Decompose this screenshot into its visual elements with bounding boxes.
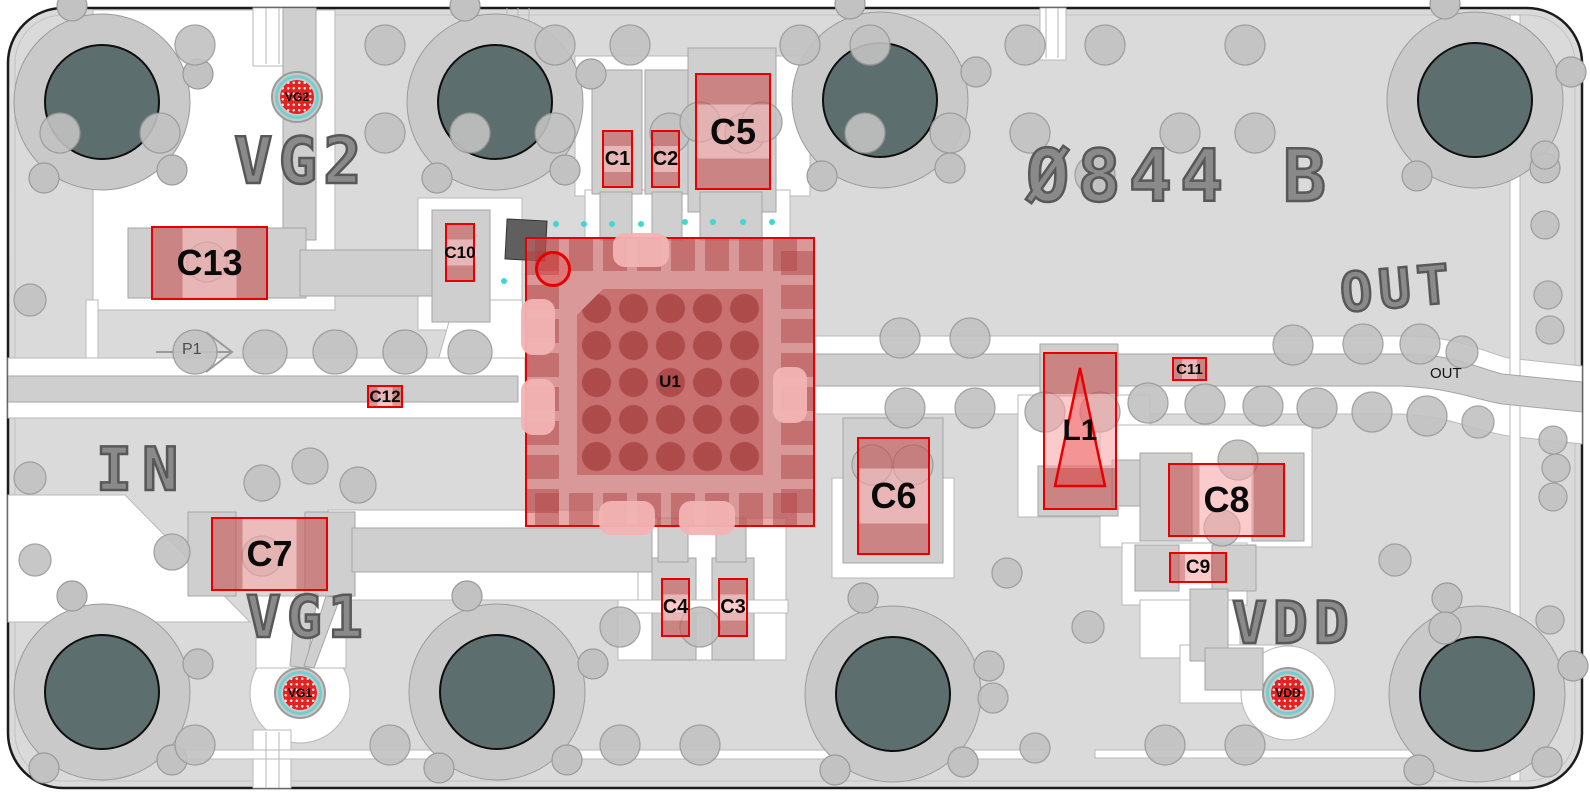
via xyxy=(1243,386,1283,426)
component-designator: C2 xyxy=(653,132,678,186)
silkscreen-board-id: Ø844 B xyxy=(1026,140,1334,212)
testpoint-label: VG2 xyxy=(273,73,321,121)
component-designator: C1 xyxy=(604,132,631,186)
via xyxy=(1273,325,1313,365)
via xyxy=(845,113,885,153)
component-C2[interactable]: C2 xyxy=(651,130,680,188)
component-C8[interactable]: C8 xyxy=(1168,463,1285,537)
silkscreen-in: IN xyxy=(96,440,188,500)
component-C10[interactable]: C10 xyxy=(445,223,475,282)
via xyxy=(1225,725,1265,765)
via xyxy=(930,113,970,153)
silkscreen-vdd: VDD xyxy=(1232,594,1355,652)
via xyxy=(1462,406,1494,438)
via xyxy=(1407,396,1447,436)
via xyxy=(14,462,46,494)
via xyxy=(1072,611,1104,643)
via xyxy=(313,330,357,374)
component-designator: U1 xyxy=(527,239,813,525)
via xyxy=(1085,25,1125,65)
via xyxy=(1539,483,1567,511)
via xyxy=(340,467,376,503)
via xyxy=(1534,281,1562,309)
via xyxy=(535,25,575,65)
testpoint-vg2[interactable]: VG2 xyxy=(271,71,323,123)
via xyxy=(383,330,427,374)
via xyxy=(610,25,650,65)
testpoint-label: VDD xyxy=(1264,669,1312,717)
via xyxy=(370,725,410,765)
via xyxy=(780,25,820,65)
mounting-hole xyxy=(440,635,554,749)
via xyxy=(950,318,990,358)
via xyxy=(1542,454,1570,482)
mounting-hole xyxy=(45,635,159,749)
testpoint-vg1[interactable]: VG1 xyxy=(274,667,326,719)
via xyxy=(1020,733,1050,763)
via xyxy=(14,284,46,316)
via xyxy=(1531,141,1559,169)
via xyxy=(1536,606,1564,634)
via xyxy=(19,544,51,576)
pcb-board: VG2 IN VG1 Ø844 B OUT VDD P1 OUT C1C2C5C… xyxy=(0,0,1590,796)
via xyxy=(1531,211,1559,239)
via xyxy=(978,683,1008,713)
via xyxy=(1297,388,1337,428)
via xyxy=(850,25,890,65)
component-designator: C6 xyxy=(859,439,928,553)
via xyxy=(292,448,328,484)
component-designator: C8 xyxy=(1170,465,1283,535)
via xyxy=(1343,324,1383,364)
silkscreen-vg2: VG2 xyxy=(234,130,368,194)
via xyxy=(154,534,190,570)
via xyxy=(1539,426,1567,454)
via xyxy=(1536,316,1564,344)
component-C12[interactable]: C12 xyxy=(367,385,403,408)
via xyxy=(450,113,490,153)
component-U1[interactable]: U1 xyxy=(525,237,815,527)
via xyxy=(365,25,405,65)
component-designator: C13 xyxy=(153,228,266,298)
via xyxy=(1379,544,1411,576)
via xyxy=(600,607,640,647)
silkscreen-out: OUT xyxy=(1338,257,1458,321)
p1-probe-label: P1 xyxy=(182,342,202,358)
component-C11[interactable]: C11 xyxy=(1172,357,1207,381)
component-C5[interactable]: C5 xyxy=(695,73,771,190)
via xyxy=(880,318,920,358)
component-C4[interactable]: C4 xyxy=(661,578,690,637)
testpoint-label: VG1 xyxy=(276,669,324,717)
component-designator: C7 xyxy=(213,519,326,589)
via xyxy=(365,113,405,153)
via xyxy=(140,113,180,153)
via xyxy=(680,725,720,765)
component-designator: C10 xyxy=(447,225,473,280)
component-designator: C11 xyxy=(1174,359,1205,379)
via xyxy=(1005,25,1045,65)
via xyxy=(448,330,492,374)
mounting-hole xyxy=(1420,637,1534,751)
component-C9[interactable]: C9 xyxy=(1169,552,1227,583)
via xyxy=(1400,324,1440,364)
via xyxy=(243,330,287,374)
component-designator: C3 xyxy=(720,580,746,635)
out-trace-label: OUT xyxy=(1430,366,1462,381)
component-designator: C4 xyxy=(663,580,688,635)
component-C1[interactable]: C1 xyxy=(602,130,633,188)
component-designator: C12 xyxy=(369,387,401,406)
component-C3[interactable]: C3 xyxy=(718,578,748,637)
mounting-hole xyxy=(1418,43,1532,157)
via xyxy=(1429,612,1461,644)
via xyxy=(175,725,215,765)
via xyxy=(885,388,925,428)
via xyxy=(1185,384,1225,424)
via xyxy=(1145,725,1185,765)
silkscreen-vg1: VG1 xyxy=(246,588,369,646)
testpoint-vdd[interactable]: VDD xyxy=(1262,667,1314,719)
component-L1[interactable]: L1 xyxy=(1043,352,1117,510)
component-C7[interactable]: C7 xyxy=(211,517,328,591)
via xyxy=(992,558,1022,588)
via xyxy=(175,25,215,65)
via xyxy=(244,465,280,501)
component-designator: C5 xyxy=(697,75,769,188)
mounting-hole xyxy=(836,637,950,751)
via xyxy=(1446,336,1478,368)
component-designator: C9 xyxy=(1171,554,1225,581)
component-designator: L1 xyxy=(1045,354,1115,508)
via xyxy=(1225,25,1265,65)
via xyxy=(1352,392,1392,432)
via xyxy=(1128,383,1168,423)
via xyxy=(535,113,575,153)
via xyxy=(955,388,995,428)
component-C13[interactable]: C13 xyxy=(151,226,268,300)
via xyxy=(600,725,640,765)
component-C6[interactable]: C6 xyxy=(857,437,930,555)
via xyxy=(40,113,80,153)
